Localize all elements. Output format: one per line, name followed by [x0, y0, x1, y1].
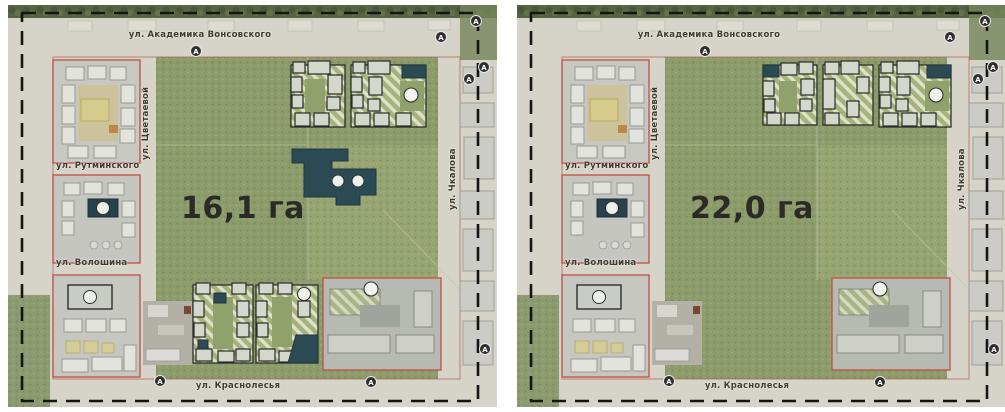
planned-cluster-b: [351, 61, 426, 127]
planned-cluster-3: [879, 61, 951, 127]
street-label-rutminskogo: ул. Рутминского: [56, 161, 139, 171]
street-label-tsvetaevoy: ул. Цветаевой: [141, 87, 151, 160]
planned-cluster-2: [823, 61, 873, 125]
planned-cluster-a: [291, 61, 345, 127]
street-label-vonsovskogo: ул. Академика Вонсовского: [100, 30, 300, 40]
street-label-krasnolesya: ул. Краснолесья: [148, 381, 328, 391]
map-panel-left: ул. Академика Вонсовского ул. Цветаевой …: [8, 5, 497, 407]
street-label-tsvetaevoy: ул. Цветаевой: [650, 87, 660, 160]
street-label-voloshina: ул. Волошина: [56, 258, 127, 268]
street-label-rutminskogo: ул. Рутминского: [565, 161, 648, 171]
street-label-voloshina: ул. Волошина: [565, 258, 636, 268]
planned-cluster-d: [256, 283, 318, 363]
comparison-canvas: ул. Академика Вонсовского ул. Цветаевой …: [0, 0, 1005, 412]
street-label-vonsovskogo: ул. Академика Вонсовского: [609, 30, 809, 40]
area-label-right: 22,0 га: [617, 191, 887, 226]
street-label-chkalova: ул. Чкалова: [448, 148, 458, 210]
map-panel-right: ул. Академика Вонсовского ул. Цветаевой …: [517, 5, 1005, 407]
planned-cluster-c: [193, 283, 253, 363]
street-label-chkalova: ул. Чкалова: [957, 148, 967, 210]
street-label-krasnolesya: ул. Краснолесья: [657, 381, 837, 391]
area-label-left: 16,1 га: [108, 191, 378, 226]
planned-cluster-1: [763, 62, 817, 125]
